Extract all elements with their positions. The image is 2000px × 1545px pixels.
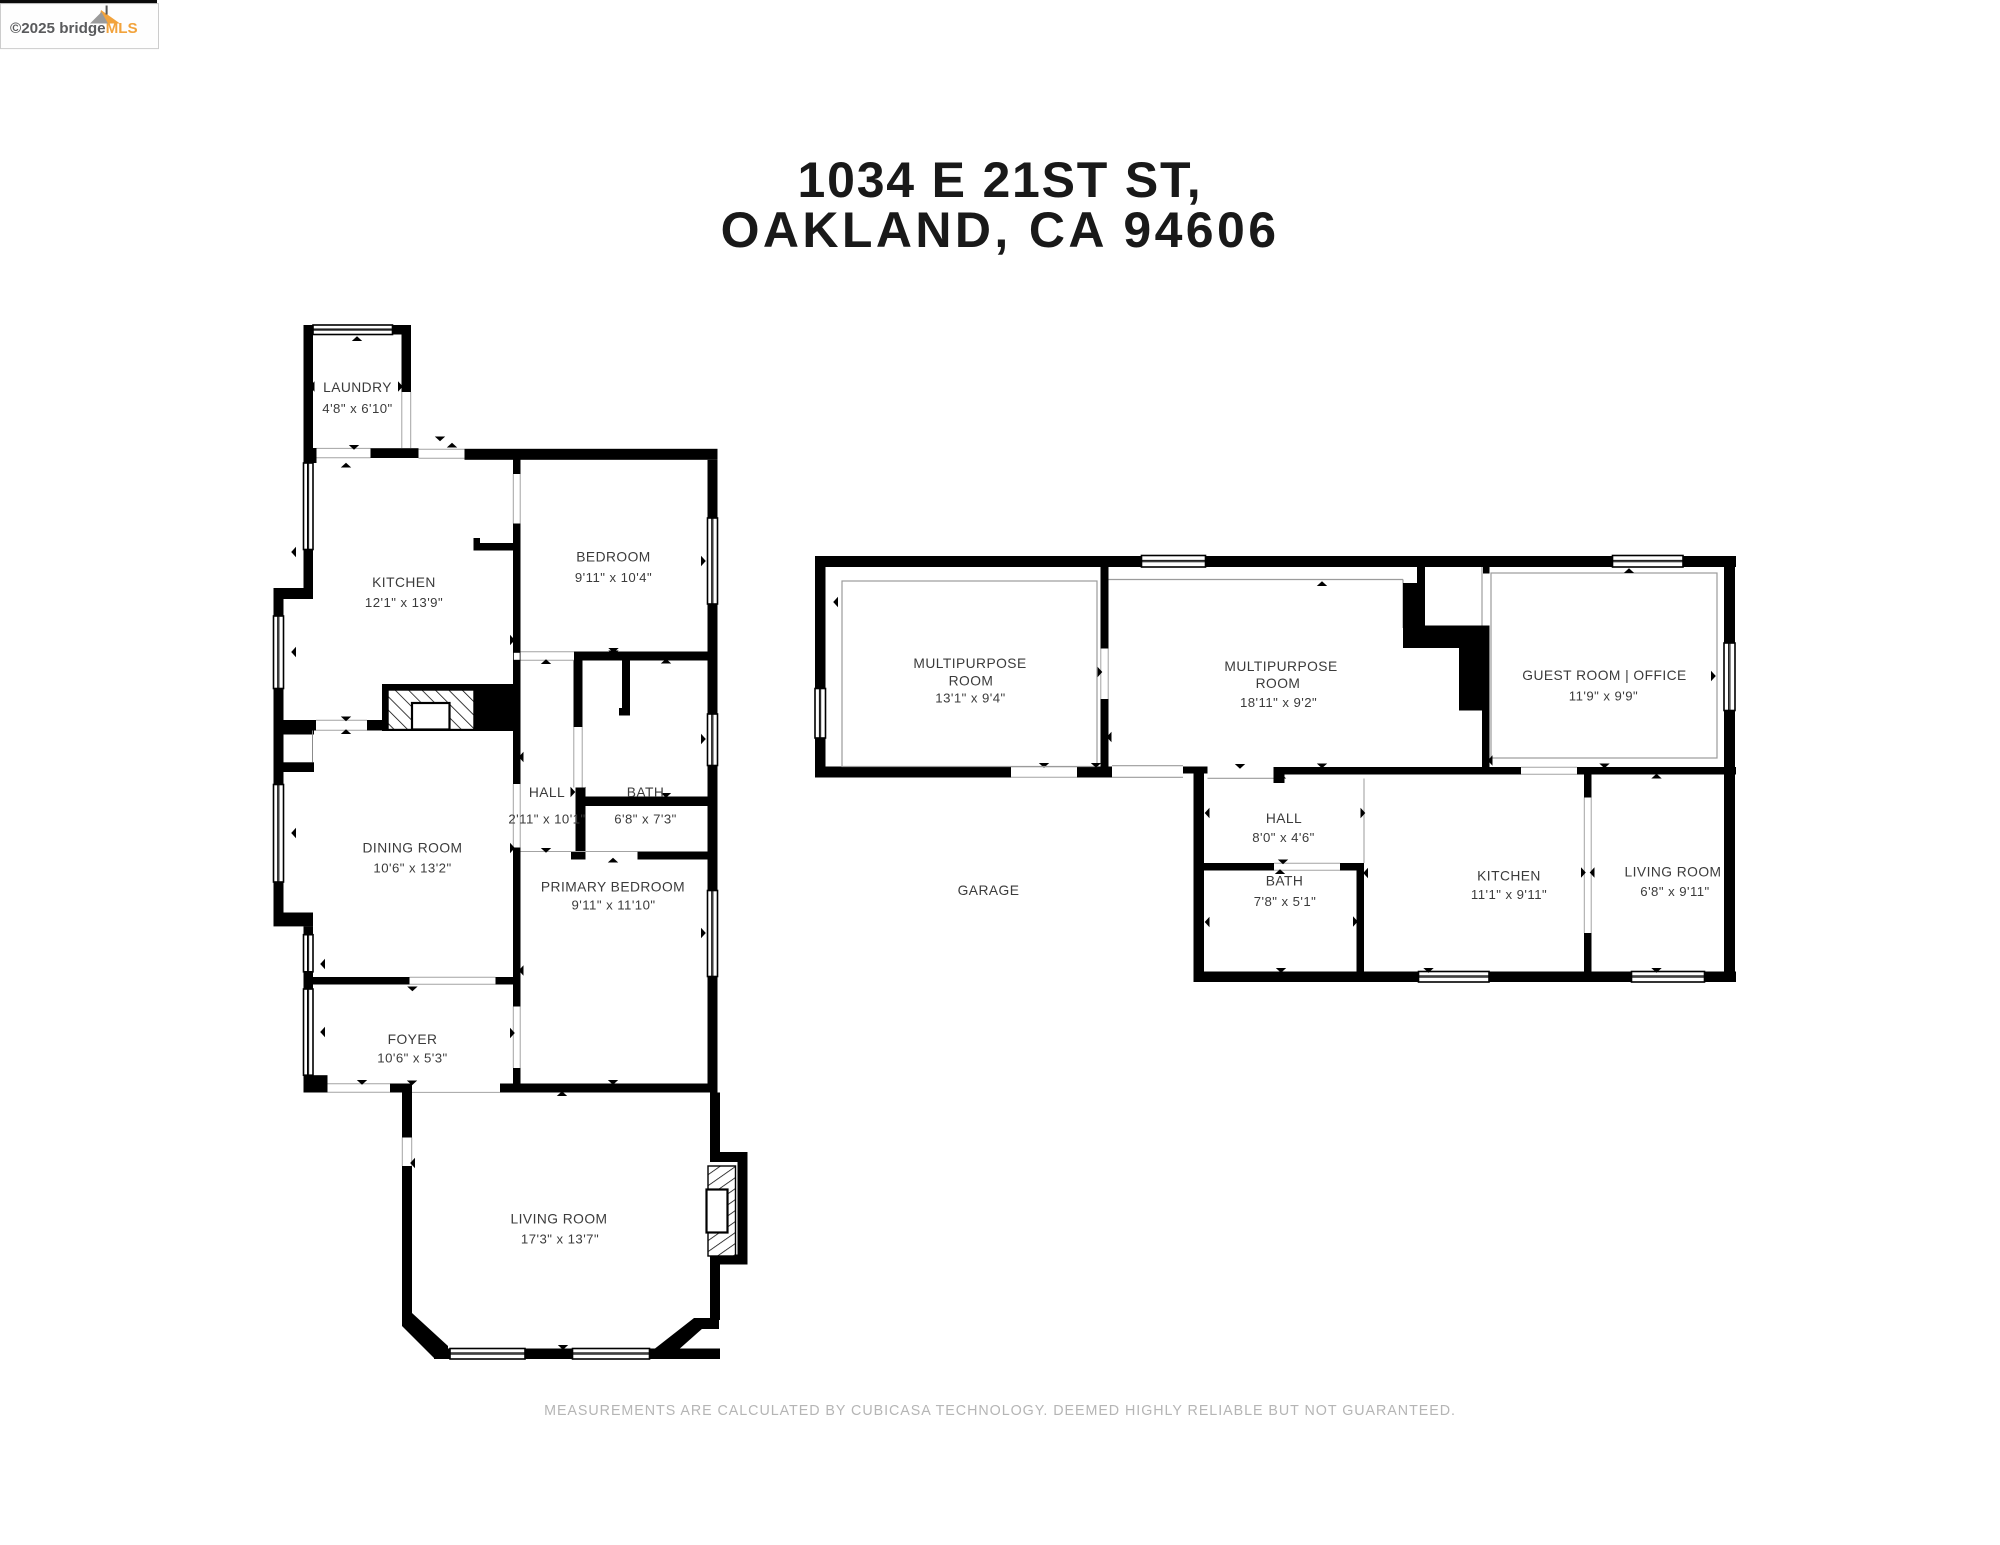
- svg-text:9'11" x 10'4": 9'11" x 10'4": [575, 570, 652, 585]
- svg-text:KITCHEN: KITCHEN: [1477, 869, 1541, 884]
- svg-text:LIVING ROOM: LIVING ROOM: [1625, 865, 1722, 880]
- svg-text:LAUNDRY: LAUNDRY: [323, 380, 392, 395]
- svg-text:ROOM: ROOM: [1256, 676, 1301, 691]
- svg-text:BEDROOM: BEDROOM: [576, 550, 650, 565]
- svg-text:BATH: BATH: [1266, 874, 1304, 889]
- svg-text:GARAGE: GARAGE: [958, 883, 1020, 898]
- svg-text:MEASUREMENTS ARE CALCULATED BY: MEASUREMENTS ARE CALCULATED BY CUBICASA …: [544, 1403, 1456, 1419]
- svg-text:1034 E 21ST ST,: 1034 E 21ST ST,: [797, 152, 1202, 208]
- svg-text:HALL: HALL: [1266, 811, 1302, 826]
- svg-text:BATH: BATH: [627, 785, 665, 800]
- svg-text:MULTIPURPOSE: MULTIPURPOSE: [913, 656, 1026, 671]
- svg-text:7'8" x 5'1": 7'8" x 5'1": [1254, 894, 1317, 909]
- svg-text:MULTIPURPOSE: MULTIPURPOSE: [1224, 659, 1337, 674]
- svg-text:9'11" x 11'10": 9'11" x 11'10": [571, 898, 655, 913]
- svg-text:FOYER: FOYER: [388, 1032, 438, 1047]
- svg-text:HALL: HALL: [529, 785, 565, 800]
- svg-text:10'6" x 5'3": 10'6" x 5'3": [377, 1051, 447, 1066]
- svg-text:OAKLAND, CA 94606: OAKLAND, CA 94606: [721, 202, 1280, 258]
- svg-text:13'1" x 9'4": 13'1" x 9'4": [935, 691, 1005, 706]
- svg-text:4'8" x 6'10": 4'8" x 6'10": [322, 401, 392, 416]
- svg-text:17'3" x 13'7": 17'3" x 13'7": [521, 1232, 599, 1247]
- svg-text:11'9" x 9'9": 11'9" x 9'9": [1569, 689, 1638, 704]
- svg-text:12'1" x 13'9": 12'1" x 13'9": [365, 595, 443, 610]
- svg-text:GUEST ROOM | OFFICE: GUEST ROOM | OFFICE: [1522, 668, 1686, 683]
- svg-text:18'11" x 9'2": 18'11" x 9'2": [1240, 695, 1317, 710]
- svg-text:LIVING ROOM: LIVING ROOM: [511, 1212, 608, 1227]
- svg-text:KITCHEN: KITCHEN: [372, 575, 436, 590]
- svg-text:PRIMARY BEDROOM: PRIMARY BEDROOM: [541, 880, 685, 895]
- svg-text:DINING ROOM: DINING ROOM: [363, 841, 463, 856]
- svg-text:2'11" x 10'1": 2'11" x 10'1": [508, 812, 585, 827]
- svg-text:ROOM: ROOM: [949, 674, 994, 689]
- svg-text:6'8" x 9'11": 6'8" x 9'11": [1640, 884, 1709, 899]
- svg-text:8'0" x 4'6": 8'0" x 4'6": [1252, 830, 1315, 845]
- svg-text:10'6" x 13'2": 10'6" x 13'2": [373, 861, 451, 876]
- svg-text:6'8" x 7'3": 6'8" x 7'3": [614, 812, 677, 827]
- svg-text:11'1" x 9'11": 11'1" x 9'11": [1471, 887, 1547, 902]
